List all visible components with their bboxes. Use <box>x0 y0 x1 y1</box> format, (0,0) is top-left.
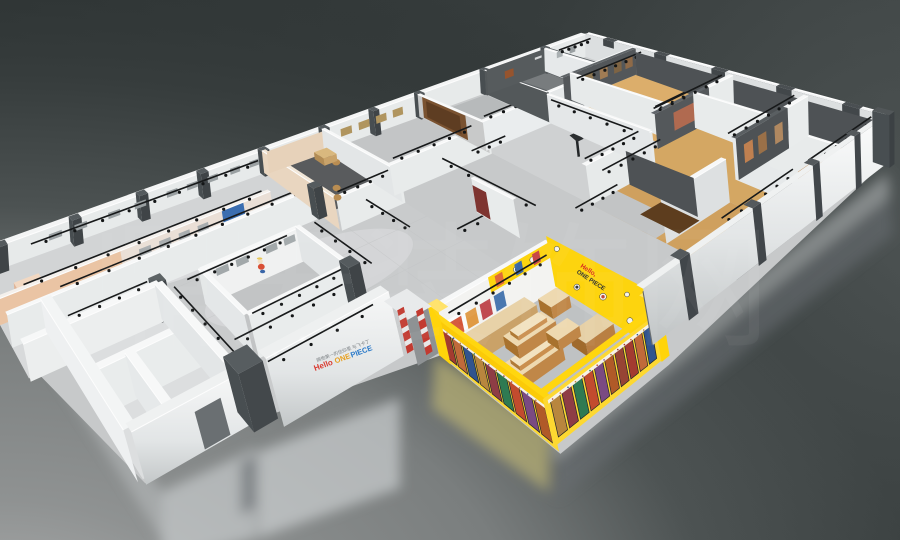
svg-text:鼎天装饰网: 鼎天装饰网 <box>88 213 773 364</box>
